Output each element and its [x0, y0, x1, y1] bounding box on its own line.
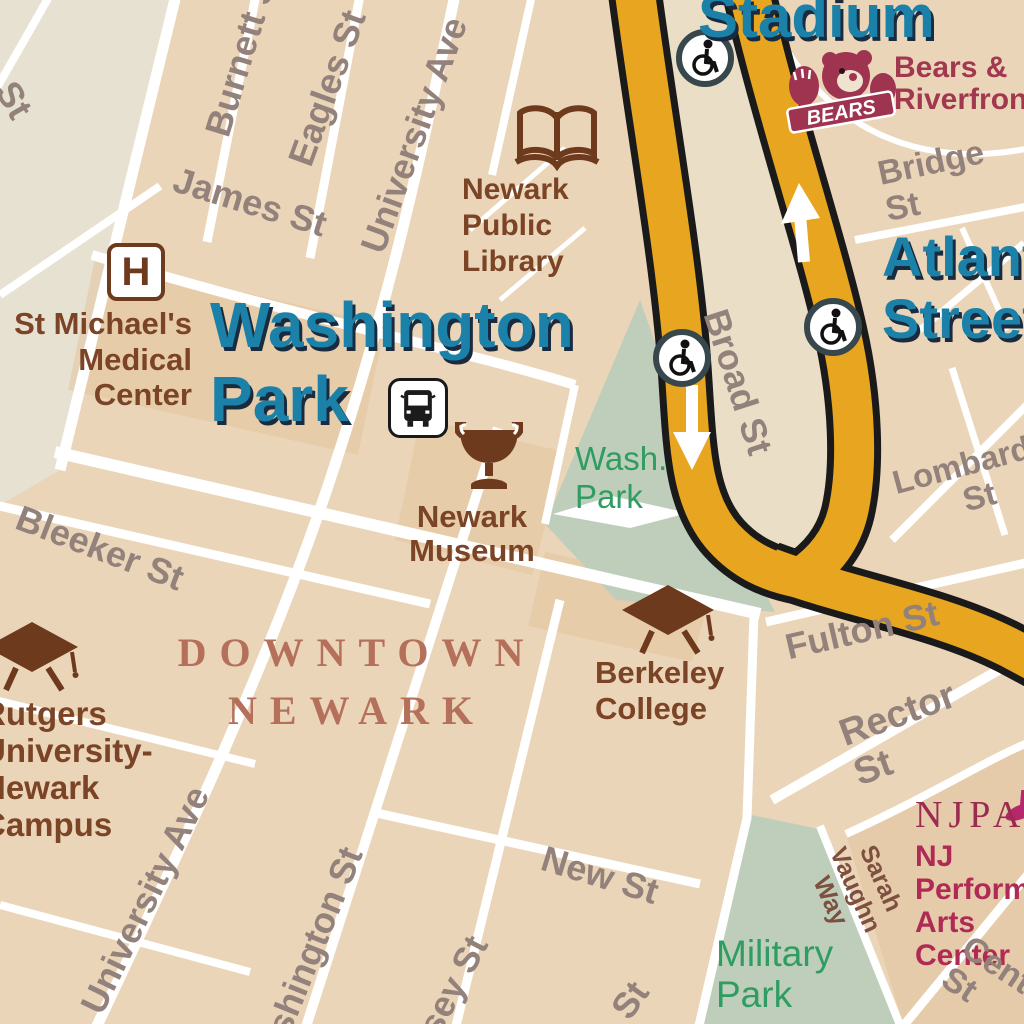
bears-team-logo: BEARS	[786, 44, 896, 141]
poi-label-berkeley-college: Berkeley College	[595, 655, 724, 727]
station-label-stadium: Stadium	[698, 0, 935, 50]
library-book-icon	[512, 98, 602, 181]
poi-label-newark-museum: Newark Museum	[402, 500, 542, 568]
station-label-washington-park: Washington Park	[210, 288, 574, 436]
poi-label-njpa: NJPA	[915, 795, 1024, 837]
poi-label-bears-riverfront: Bears & Riverfront	[894, 52, 1024, 117]
hospital-h-glyph: H	[122, 252, 151, 292]
poi-label-newark-public-library: Newark Public Library	[462, 172, 569, 280]
wheelchair-accessible-icon	[807, 301, 859, 353]
station-label-atlantic-street: Atlantic Street	[882, 226, 1024, 349]
newark-downtown-map: H	[0, 0, 1024, 1024]
park-label-military-park: Military Park	[716, 933, 833, 1016]
wheelchair-accessible-icon	[656, 332, 708, 384]
district-label-downtown-newark: DOWNTOWN NEWARK	[178, 624, 537, 740]
poi-label-rutgers-campus: Rutgers University- Newark Campus	[0, 696, 153, 844]
park-label-wash-park: Wash. Park	[575, 440, 667, 516]
poi-label-st-michaels: St Michael's Medical Center	[0, 306, 192, 413]
graduation-cap-icon	[620, 583, 716, 660]
hospital-icon: H	[107, 243, 165, 301]
graduation-cap-icon	[0, 620, 80, 697]
